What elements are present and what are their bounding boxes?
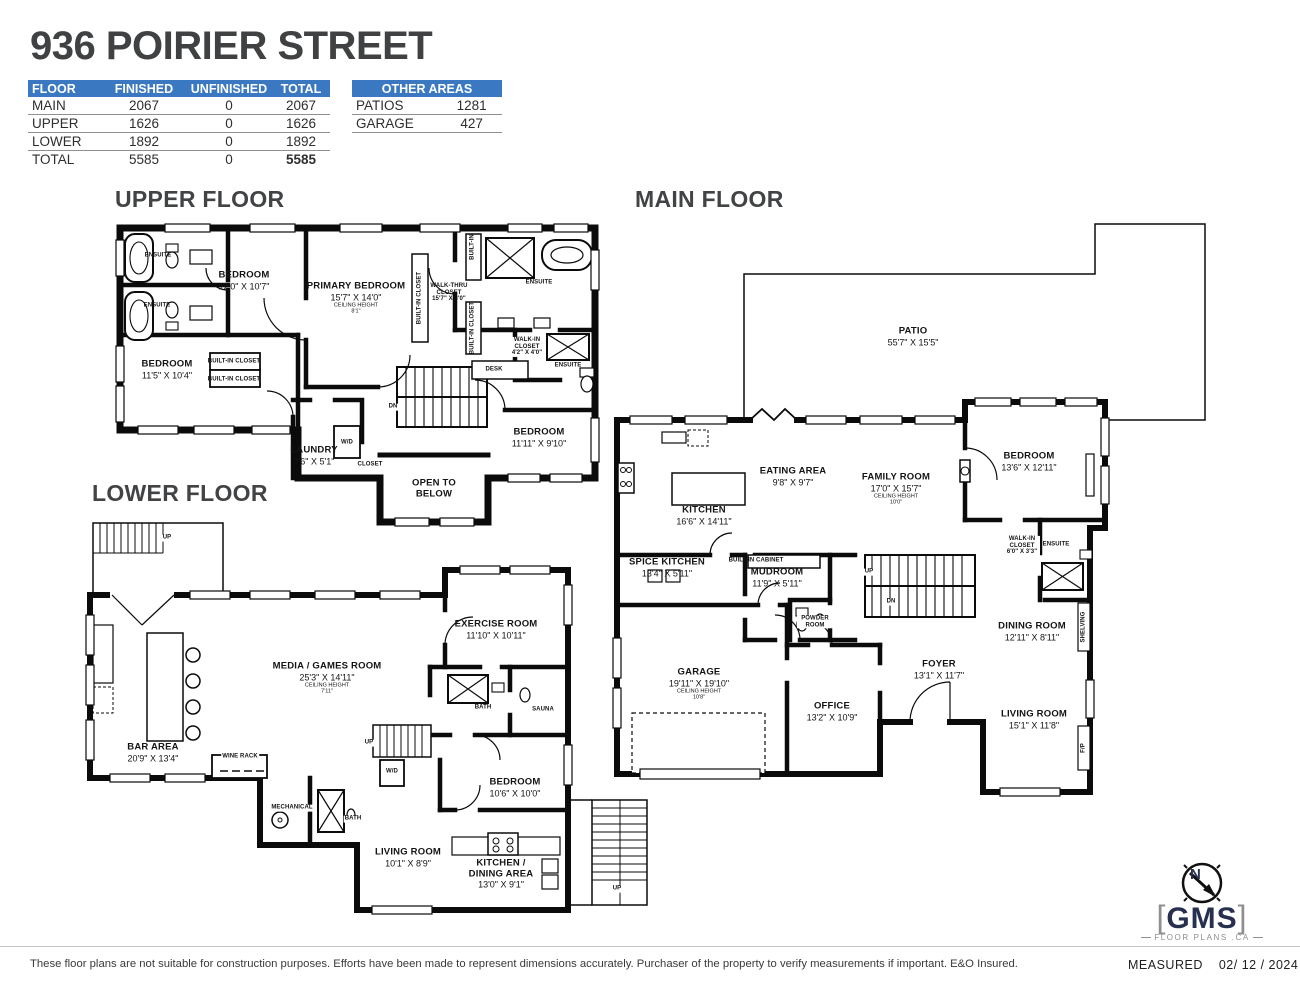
room-label-mechanical: MECHANICAL [270,805,313,812]
measured-label: MEASURED [1128,958,1203,972]
measured-row: MEASURED 02/ 12 / 2024 [1128,958,1298,972]
table-row: PATIOS 1281 [352,97,502,115]
vanity-icon [190,250,212,264]
room-label-bar-area: BAR AREA20'9" X 13'4" [127,743,178,764]
room-label-eating-area: EATING AREA9'8" X 9'7" [760,467,827,488]
gms-wordmark: [GMS] [1140,903,1264,932]
room-label-open-to-below: OPEN TO BELOW [402,478,466,499]
room-label-fireplace: F/P [1081,743,1088,753]
measured-date: 02/ 12 / 2024 [1219,958,1298,972]
room-label-built-in-cabinet: BUILT-IN CABINET [729,558,784,565]
room-label-wine-rack: WINE RACK [221,754,259,761]
lower-mid-stairs-icon [373,725,431,757]
sink-icon [492,683,504,692]
room-label-powder-room: POWDER ROOM [797,615,833,628]
compass-n-letter: N [1190,866,1201,883]
col-header-total: TOTAL [272,82,330,96]
lower-right-stairs-icon [568,800,647,905]
vanity-icon [190,306,212,320]
sink-icon [498,318,514,328]
room-label-walk-thru-closet: WALK-THRU CLOSET15'7" X 8'0" [429,283,469,303]
table-total-row: TOTAL 5585 0 5585 [28,151,330,168]
col-header-unfinished: UNFINISHED [186,82,272,96]
room-label-kitchen-dining: KITCHEN / DINING AREA13'0" X 9'1" [468,858,534,889]
cell-area-value: 1281 [441,98,502,113]
cell-area-name: PATIOS [352,98,441,113]
room-label-dining-room: DINING ROOM12'11" X 8'11" [998,622,1066,643]
room-label-built-in-closet: BUILT-IN CLOSET [208,377,260,384]
room-label-shelving: SHELVING [1081,611,1088,642]
room-label-bedroom: BEDROOM11'11" X 9'10" [512,428,567,449]
room-label-sauna: SAUNA [531,707,555,714]
room-label-primary-bedroom: PRIMARY BEDROOM15'7" X 14'0"CEILING HEIG… [307,281,406,314]
bar-stool-icon [186,648,200,662]
table-row: UPPER 1626 0 1626 [28,115,330,133]
room-label-kitchen: KITCHEN16'6" X 14'11" [676,506,731,527]
main-stairs-icon [865,555,975,617]
cell-area-value: 427 [441,116,502,131]
upper-floor-title: UPPER FLOOR [115,186,284,213]
cell-total: 2067 [272,98,330,113]
room-label-built-in-closet: BUILT-IN CLOSET [208,359,260,366]
room-label-office: OFFICE13'2" X 10'9" [807,702,858,723]
lower-entry-stairs-icon [93,523,223,593]
footer-disclaimer: These floor plans are not suitable for c… [30,958,1018,970]
page-title: 936 POIRIER STREET [30,24,432,69]
room-label-walk-in-closet: WALK-IN CLOSET6'0" X 3'3" [1004,536,1040,556]
stairs-label-up: UP [864,569,875,576]
col-header-finished: FINISHED [102,82,186,96]
stairs-label-up: UP [364,740,375,747]
other-areas-title: OTHER AREAS [382,82,473,96]
main-floor-title: MAIN FLOOR [635,186,784,213]
room-label-walk-in-closet: WALK-IN CLOSET4'2" X 4'0" [509,337,545,357]
room-label-bedroom: BEDROOM13'6" X 12'11" [1001,452,1056,473]
sink-icon [1080,550,1092,559]
room-label-desk: DESK [484,367,503,374]
table-row: MAIN 2067 0 2067 [28,97,330,115]
room-label-ensuite: ENSUITE [555,363,582,370]
room-label-mudroom: MUDROOM11'9" X 5'11" [751,568,804,589]
area-summary-header-row: FLOOR FINISHED UNFINISHED TOTAL [28,80,330,97]
room-label-ensuite: ENSUITE [144,303,171,310]
room-label-living-room: LIVING ROOM15'1" X 11'8" [1001,710,1067,731]
room-label-bath: BATH [344,816,363,823]
room-label-spice-kitchen: SPICE KITCHEN13'4" X 5'11" [629,558,705,579]
bracket-right: ] [1238,899,1248,935]
table-row: GARAGE 427 [352,115,502,133]
room-label-laundry: LAUNDRY7'6" X 5'1" [290,446,338,467]
range-icon [618,463,634,493]
toilet-icon [520,688,530,702]
stairs-label-dn: DN [886,599,897,606]
col-header-floor: FLOOR [28,82,102,96]
cell-floor: MAIN [28,98,102,113]
kitchen-island-icon [672,473,745,505]
footer-divider [0,946,1300,947]
room-label-built-in: BUILT-IN [470,234,477,260]
cell-unfinished: 0 [186,98,272,113]
cell-unfinished: 0 [186,152,272,167]
bracket-left: [ [1156,899,1166,935]
cell-total: 1892 [272,134,330,149]
room-label-garage: GARAGE19'11" X 19'10"CEILING HEIGHT10'8" [669,667,729,700]
garage-parking-stall [632,713,765,773]
sink-icon [662,432,686,443]
cell-unfinished: 0 [186,116,272,131]
stove-icon [488,833,518,855]
appliance-icon [542,875,558,889]
room-label-family-room: FAMILY ROOM17'0" X 15'7"CEILING HEIGHT10… [862,472,930,505]
stairs-label-up: UP [162,535,173,542]
other-areas-header: OTHER AREAS [352,80,502,97]
table-row: LOWER 1892 0 1892 [28,133,330,151]
cell-floor: TOTAL [28,152,102,167]
cell-unfinished: 0 [186,134,272,149]
cell-finished: 1892 [102,134,186,149]
room-label-exercise-room: EXERCISE ROOM11'10" X 10'11" [455,620,538,641]
toilet-icon [581,376,593,392]
stairs-label-up: UP [612,886,623,893]
room-label-washer-dryer: W/D [340,440,354,447]
patio-outline [744,224,1205,420]
sink-icon [534,318,550,328]
fridge-icon [688,430,708,446]
gms-tagline: FLOOR PLANS .CA [1140,933,1264,942]
cell-area-name: GARAGE [352,116,441,131]
cell-total: 1626 [272,116,330,131]
room-label-ensuite: ENSUITE [1043,542,1070,549]
room-label-closet: CLOSET [357,462,384,469]
cell-finished: 1626 [102,116,186,131]
bar-stool-icon [186,674,200,688]
stairs-label-dn: DN [388,404,399,411]
room-label-patio: PATIO55'7" X 15'5" [888,327,939,348]
room-label-media-games-room: MEDIA / GAMES ROOM25'3" X 14'11"CEILING … [273,661,382,694]
area-summary-table: FLOOR FINISHED UNFINISHED TOTAL MAIN 206… [28,80,330,168]
gms-brand-text: GMS [1166,902,1237,935]
room-label-washer-dryer: W/D [385,769,399,776]
room-label-living-room: LIVING ROOM10'1" X 8'9" [375,848,441,869]
bar-stool-icon [186,700,200,714]
lower-floor-plan [80,515,650,935]
gms-logo: [GMS] FLOOR PLANS .CA [1140,903,1264,942]
room-label-bedroom: BEDROOM10'6" X 10'0" [489,778,540,799]
room-label-ensuite: ENSUITE [145,253,172,260]
cell-floor: UPPER [28,116,102,131]
appliance-icon [542,859,558,873]
room-label-built-in-closet: BUILT-IN CLOSET [470,302,477,354]
cell-floor: LOWER [28,134,102,149]
cell-total: 5585 [272,152,330,167]
room-label-foyer: FOYER13'1" X 11'7" [914,660,964,681]
bar-stool-icon [186,726,200,740]
room-label-ensuite: ENSUITE [526,280,553,287]
room-label-bedroom: BEDROOM12'0" X 10'7" [218,271,269,292]
bar-island-icon [147,633,183,741]
other-areas-table: OTHER AREAS PATIOS 1281 GARAGE 427 [352,80,502,133]
room-label-built-in-closet: BUILT-IN CLOSET [417,272,424,324]
bar-counter-icon [93,625,113,683]
cell-finished: 5585 [102,152,186,167]
room-label-bath: BATH [474,705,493,712]
cell-finished: 2067 [102,98,186,113]
room-label-bedroom: BEDROOM11'5" X 10'4" [141,360,192,381]
